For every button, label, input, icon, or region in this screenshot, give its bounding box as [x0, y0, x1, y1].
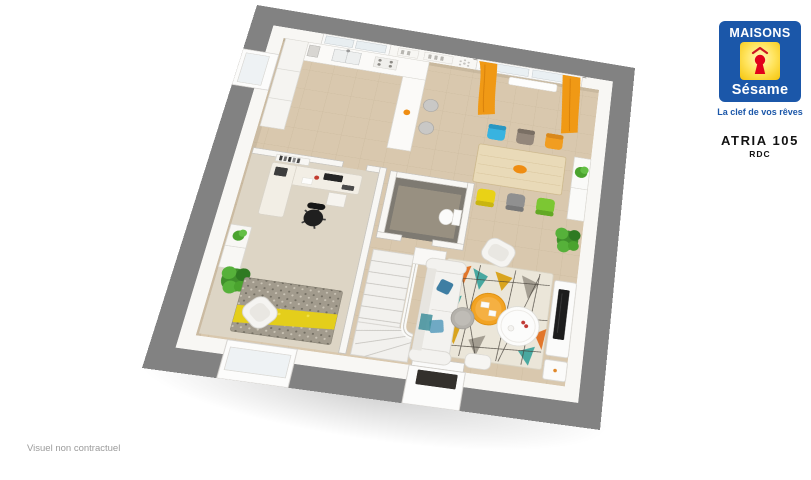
brand-name-top: MAISONS	[729, 27, 790, 40]
floor-plan-svg	[142, 5, 635, 430]
brand-tagline: La clef de vos rêves	[712, 107, 808, 117]
papers	[301, 177, 312, 184]
printer	[274, 167, 289, 177]
brand-block: MAISONS Sésame La clef de vos rêves ATRI…	[712, 21, 808, 159]
brand-logo: MAISONS Sésame	[719, 21, 801, 102]
model-name: ATRIA 105	[712, 133, 808, 148]
page: MAISONS Sésame La clef de vos rêves ATRI…	[0, 0, 811, 480]
keyhole-icon	[749, 46, 771, 76]
desk-drawer-unit	[326, 192, 347, 207]
logo-yellow-square	[740, 42, 780, 80]
side-cabinet	[542, 359, 567, 382]
disclaimer-text: Visuel non contractuel	[27, 443, 120, 454]
floor-plan-3d	[142, 5, 635, 430]
floor-label: RDC	[712, 149, 808, 159]
brand-name-bottom: Sésame	[732, 83, 789, 98]
